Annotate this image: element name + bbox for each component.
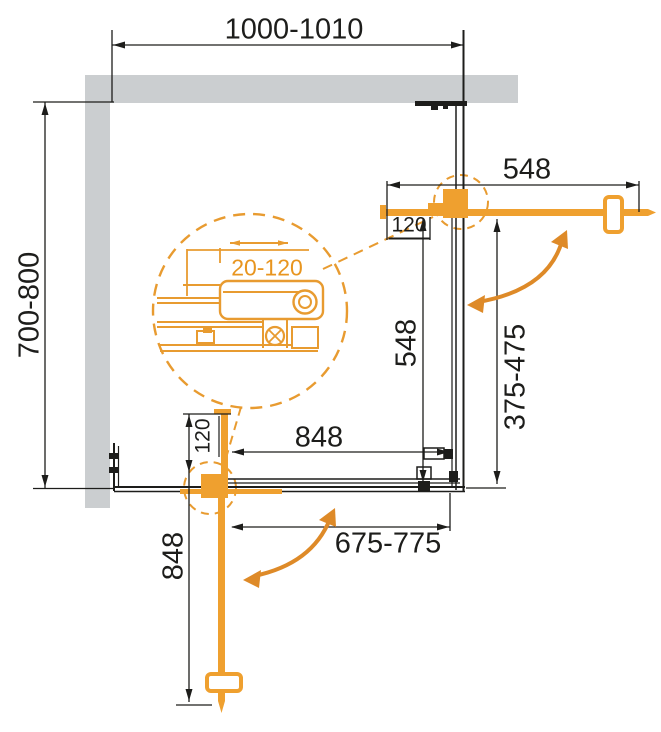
detail-knob-outer (294, 291, 317, 314)
top-hinge-block (443, 189, 468, 218)
detail-knob-inner (299, 296, 311, 308)
bottom-hinge-cap (214, 409, 231, 414)
top-swing-arc (478, 241, 562, 302)
arrowhead (231, 524, 243, 531)
arrowhead (232, 449, 244, 456)
bottom-rail-orange (180, 489, 201, 494)
arrowhead (186, 689, 193, 701)
corner-hardware-block (444, 449, 453, 459)
left-bracket-tooth (109, 453, 118, 459)
bottom-door-bar (218, 498, 225, 701)
shower-enclosure-dimension-diagram: 1000-1010 700-800 548 120 548 375-475 84… (0, 0, 661, 732)
adjustment-range-label: 20-120 (231, 257, 303, 280)
arrowhead (494, 220, 501, 232)
top-door-handle (605, 197, 622, 232)
arrowhead (494, 471, 501, 483)
overall-width-label: 1000-1010 (225, 16, 364, 45)
top-hinge-offset-label: 120 (388, 215, 429, 240)
top-door-tip (648, 209, 656, 216)
bottom-hinge-stem (221, 412, 228, 475)
top-wall (85, 75, 518, 103)
top-wall-bracket (415, 101, 467, 106)
bottom-door-handle (207, 674, 241, 691)
bottom-opening-range-label: 675-775 (335, 530, 441, 559)
corner-hardware-block (418, 481, 430, 491)
detail-screw-cross (269, 330, 281, 342)
left-bracket-tooth (109, 467, 118, 473)
arrowhead (113, 42, 125, 49)
dimension-lines (33, 30, 639, 705)
drawing-canvas (0, 0, 661, 732)
top-bracket-tooth (431, 106, 438, 110)
right-opening-range-label: 375-475 (502, 324, 531, 430)
bottom-panel-width-label: 848 (295, 424, 343, 453)
corner-hardware-block (449, 471, 458, 482)
bottom-hinge-offset-label: 120 (193, 418, 214, 453)
detail-block (203, 327, 212, 333)
bottom-door-tip (218, 701, 225, 713)
bottom-rail-orange (227, 489, 282, 494)
left-door-width-label: 848 (160, 532, 189, 580)
arrowhead (42, 103, 49, 115)
top-door-width-label: 548 (503, 156, 551, 185)
detail-arrowhead-left (230, 240, 240, 246)
arrowhead (388, 182, 400, 189)
top-hinge-arm (428, 203, 445, 212)
detail-arrowhead-right (278, 240, 288, 246)
arrowhead (420, 470, 427, 482)
arrowhead (626, 182, 638, 189)
swing-arrowhead (467, 295, 485, 313)
bottom-door-open (180, 409, 282, 713)
swing-arrowhead (243, 570, 261, 588)
bottom-hinge-block (201, 474, 228, 498)
left-wall (85, 75, 110, 508)
arrowhead (42, 475, 49, 487)
arrowhead (451, 42, 463, 49)
top-bracket-tooth (443, 106, 448, 109)
top-door-end-cap (380, 205, 386, 219)
detail-clamp-right (292, 327, 318, 348)
overall-depth-label: 700-800 (16, 252, 45, 358)
side-panel-width-label: 548 (393, 319, 422, 367)
